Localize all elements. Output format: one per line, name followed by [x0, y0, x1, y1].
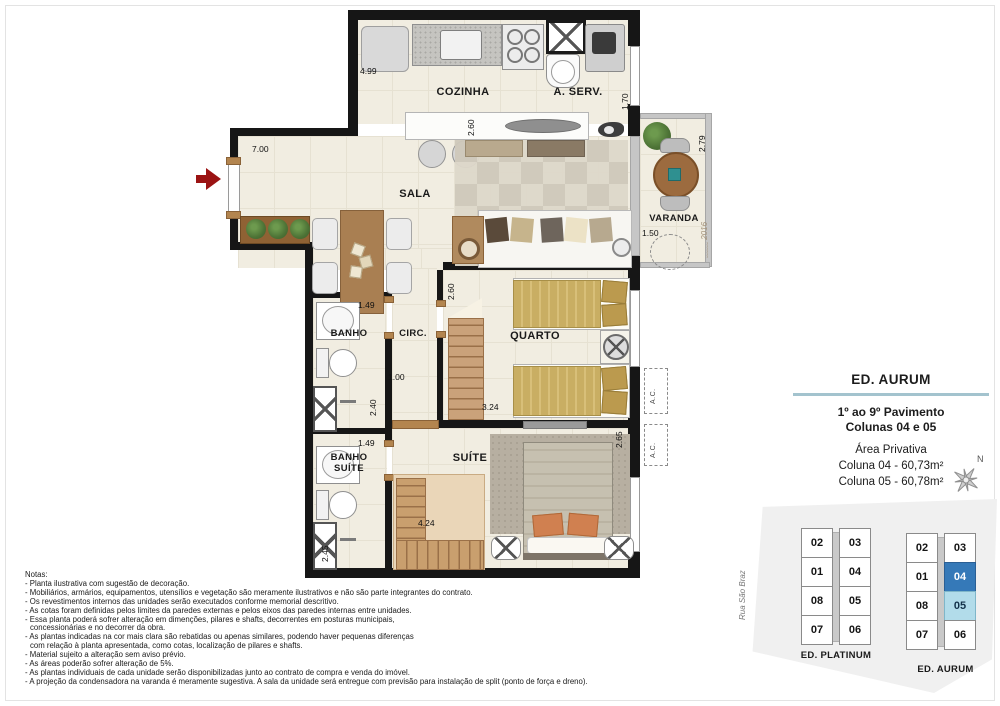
table-fan	[603, 334, 629, 360]
room-label-aserv: A. SERV.	[528, 86, 628, 98]
unit-platinum-07: 07	[801, 615, 833, 645]
unit-platinum-05: 05	[839, 586, 871, 616]
columns-line: Colunas 04 e 05	[793, 420, 989, 435]
room-label-banho-suite: BANHO SUÍTE	[317, 452, 381, 474]
sofa-pillow	[540, 217, 564, 242]
bed-pillow-orange	[532, 513, 564, 538]
nightstand-lamp	[604, 536, 634, 560]
dim-varanda-h: 2.79	[697, 135, 707, 152]
bed-pillow-orange	[567, 513, 599, 538]
bed-pillow-white	[527, 537, 609, 554]
dim-aserv: 1.70	[620, 93, 630, 110]
unit-platinum-04: 04	[839, 557, 871, 587]
dim-cozinha: 4.99	[360, 66, 377, 76]
dim-quarto: 3.24	[482, 402, 499, 412]
unit-platinum-03: 03	[839, 528, 871, 558]
dim-circ: 1.00	[388, 372, 405, 382]
floors-line: 1º ao 9º Pavimento	[793, 405, 989, 420]
title-divider	[793, 393, 989, 396]
suite-toilet-tank	[316, 490, 329, 520]
notes-block: Notas: - Planta ilustrativa com sugestão…	[25, 571, 665, 687]
entry-arrow	[196, 175, 206, 183]
aurum-label: ED. AURUM	[893, 664, 998, 675]
unit-aurum-06: 06	[944, 620, 976, 650]
dim-bar: 2.60	[466, 119, 476, 136]
street-label: Rua São Braz	[738, 540, 747, 620]
dining-chair	[312, 262, 338, 294]
sofa-pillow	[485, 217, 509, 243]
room-label-suite: SUÍTE	[425, 452, 515, 464]
sofa-pillow	[589, 217, 613, 243]
dim-sala: 7.00	[252, 144, 269, 154]
unit-platinum-02: 02	[801, 528, 833, 558]
dim-varanda-w: 1.50	[642, 228, 659, 238]
room-label-cozinha: COZINHA	[408, 86, 518, 98]
floor-cushion	[527, 140, 585, 157]
room-label-banho: BANHO	[313, 328, 385, 339]
toilet-bowl	[329, 349, 357, 377]
kitchen-sink	[440, 30, 482, 60]
ac-label: A.C.	[650, 442, 657, 458]
washer-door	[592, 32, 616, 54]
room-label-sala: SALA	[370, 188, 460, 200]
dim-banho-suite-h: 2.45	[320, 545, 330, 562]
condenser-projection	[650, 234, 690, 270]
floor-lamp	[612, 238, 631, 257]
room-label-quarto: QUARTO	[475, 330, 595, 342]
signature: ﹏﹏ 2016	[699, 222, 710, 258]
bed-blanket	[513, 280, 601, 328]
bed-pillow	[601, 303, 627, 327]
dim-quarto-wall: 2.60	[446, 283, 456, 300]
sofa-pillow	[564, 217, 588, 243]
unit-aurum-03: 03	[944, 533, 976, 563]
tank-basin	[551, 60, 575, 84]
note-line: - A projeção da condensadora na varanda …	[25, 678, 665, 687]
balcony-chair	[660, 138, 690, 153]
burner	[507, 47, 523, 63]
shower-faucet	[340, 400, 356, 403]
bed-blanket	[513, 366, 601, 416]
suite-toilet-bowl	[329, 491, 357, 519]
unit-aurum-07: 07	[906, 620, 938, 650]
plant	[268, 219, 288, 239]
bed-pillow	[601, 390, 628, 415]
dim-banho-h: 2.40	[368, 399, 378, 416]
tv	[505, 119, 581, 133]
ac-label: A.C.	[650, 388, 657, 404]
plant	[246, 219, 266, 239]
cat-patch	[604, 126, 614, 134]
bar-stool	[418, 140, 446, 168]
entry-arrow-head	[206, 168, 221, 190]
unit-aurum-02: 02	[906, 533, 938, 563]
signature-scribble: ﹏﹏	[700, 242, 709, 258]
unit-platinum-01: 01	[801, 557, 833, 587]
unit-platinum-06: 06	[839, 615, 871, 645]
bed-pillow	[601, 280, 628, 304]
unit-aurum-05-highlighted: 05	[944, 591, 976, 621]
dim-banho-suite: 1.49	[358, 438, 375, 448]
headboard	[523, 553, 611, 560]
unit-aurum-01: 01	[906, 562, 938, 592]
dining-chair	[386, 218, 412, 250]
unit-platinum-08: 08	[801, 586, 833, 616]
dim-banho: 1.49	[358, 300, 375, 310]
building-title: ED. AURUM	[793, 372, 989, 387]
balcony-chair	[660, 196, 690, 211]
bed-pillow	[601, 366, 628, 391]
burner	[524, 29, 540, 45]
nightstand-lamp	[491, 536, 521, 560]
floor-cushion	[465, 140, 523, 157]
tv-rack	[523, 421, 587, 429]
burner	[507, 29, 523, 45]
shaft	[546, 20, 586, 54]
burner	[524, 47, 540, 63]
unit-aurum-04-highlighted: 04	[944, 562, 976, 592]
dining-chair	[312, 218, 338, 250]
dim-suite-h: 2.65	[614, 431, 624, 448]
toilet-tank	[316, 348, 329, 378]
plant	[290, 219, 310, 239]
table-decor	[349, 265, 363, 279]
compass-n: N	[977, 454, 984, 464]
side-table-bowl	[458, 238, 480, 260]
shower	[313, 386, 337, 432]
table-napkin	[668, 168, 681, 181]
signature-year: 2016	[700, 222, 709, 240]
suite-shower-faucet	[340, 538, 356, 541]
dim-suite-closet: 4.24	[418, 518, 435, 528]
unit-aurum-08: 08	[906, 591, 938, 621]
floor-plan-sheet: A.C. A.C. COZINHA A. SERV. SALA VARANDA …	[0, 0, 1000, 706]
dining-chair	[386, 262, 412, 294]
compass-rose: N	[946, 452, 990, 502]
sofa-pillow	[510, 217, 534, 243]
room-label-circ: CIRC.	[386, 328, 440, 339]
platinum-label: ED. PLATINUM	[786, 650, 886, 661]
closet-horizontal	[396, 540, 484, 570]
